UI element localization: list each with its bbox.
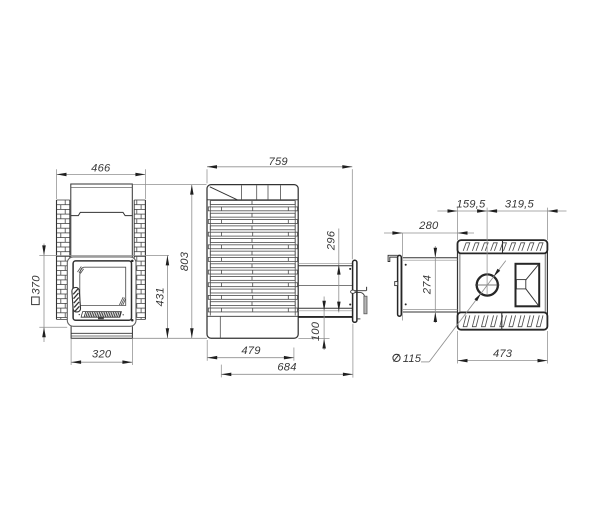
svg-text:431: 431	[154, 287, 166, 306]
svg-text:100: 100	[310, 321, 322, 341]
svg-text:320: 320	[92, 349, 112, 361]
svg-text:319,5: 319,5	[505, 199, 535, 211]
svg-text:759: 759	[269, 156, 288, 168]
svg-text:370: 370	[31, 275, 43, 295]
svg-text:473: 473	[493, 348, 513, 360]
svg-text:159,5: 159,5	[456, 199, 486, 211]
svg-text:274: 274	[422, 275, 434, 295]
svg-text:466: 466	[91, 163, 111, 175]
svg-text:115: 115	[403, 353, 422, 365]
svg-text:479: 479	[241, 345, 260, 357]
svg-text:684: 684	[277, 362, 296, 374]
svg-text:296: 296	[326, 230, 338, 251]
svg-text:280: 280	[418, 220, 439, 232]
svg-text:803: 803	[179, 251, 191, 271]
